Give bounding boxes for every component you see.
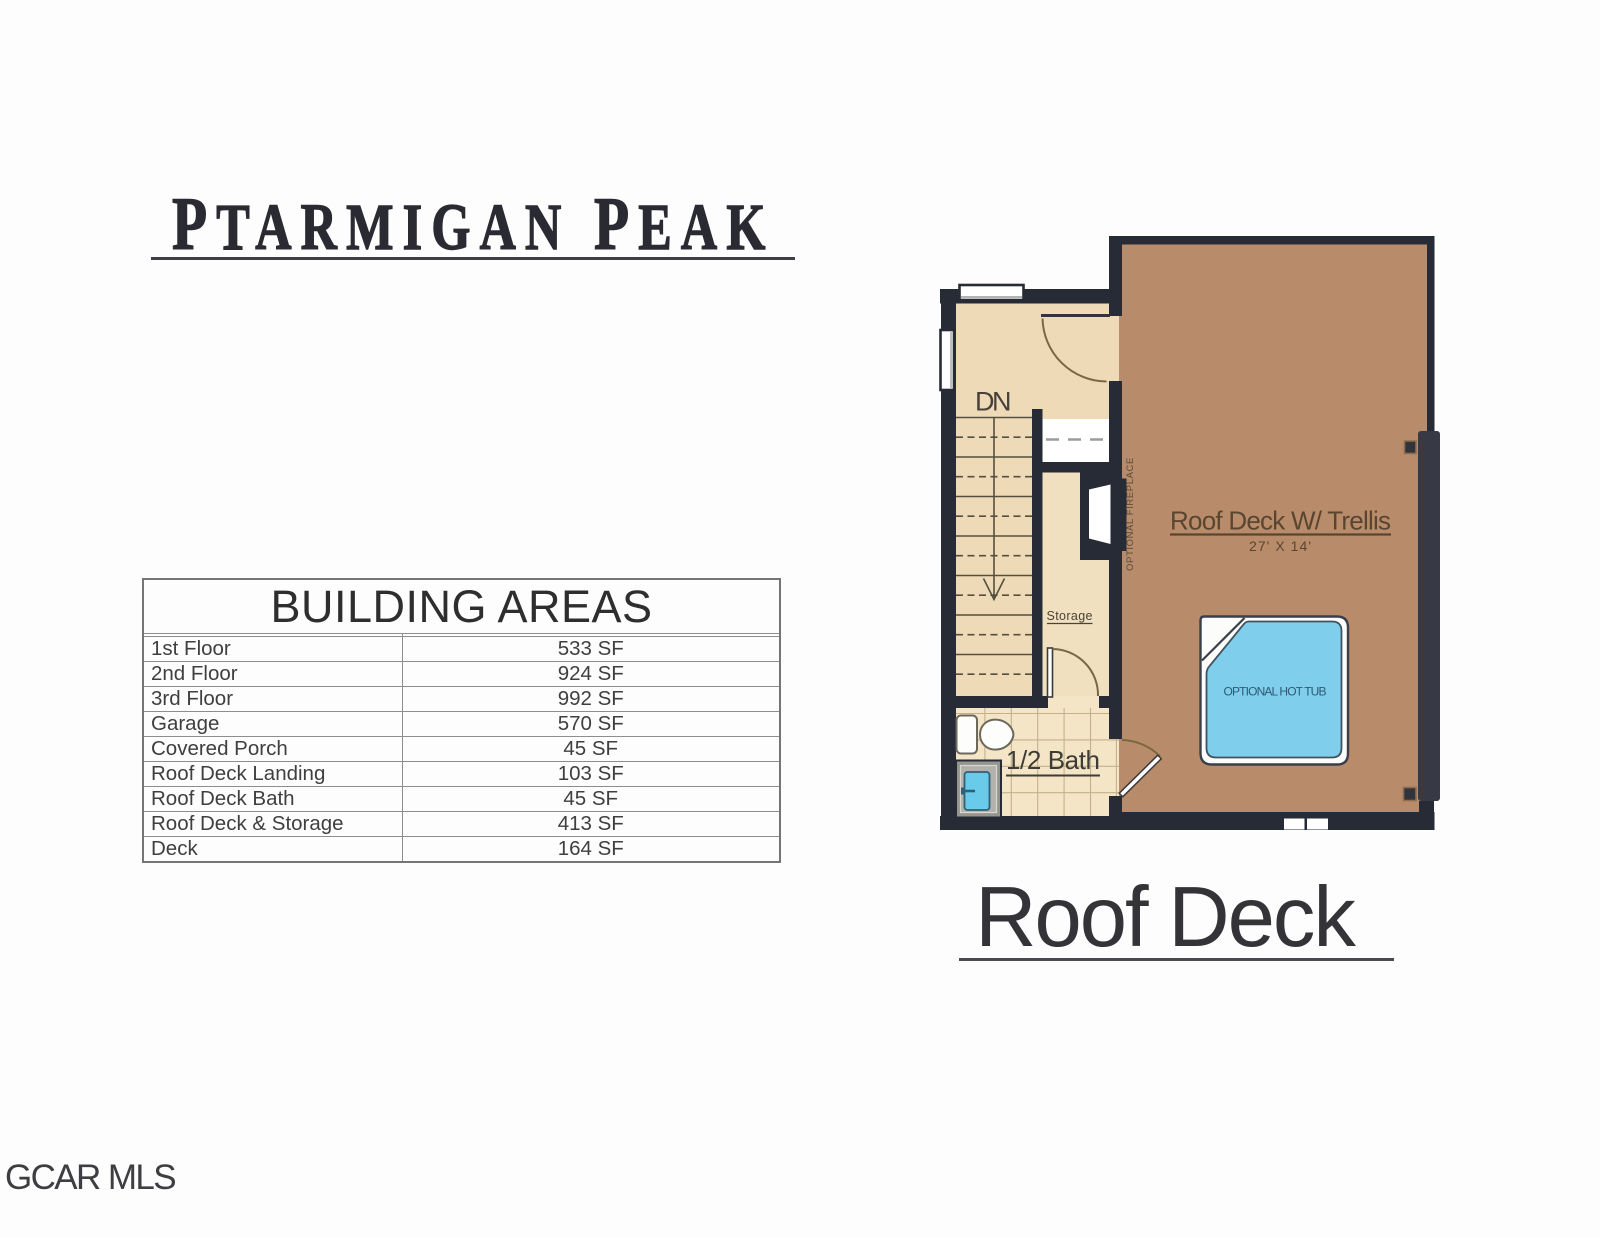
svg-text:1/2 Bath: 1/2 Bath <box>1006 745 1100 775</box>
svg-text:Storage: Storage <box>1047 609 1093 623</box>
svg-text:Roof Deck W/ Trellis: Roof Deck W/ Trellis <box>1170 506 1391 536</box>
svg-text:DN: DN <box>975 387 1012 417</box>
svg-text:OPTIONAL FIREPLACE: OPTIONAL FIREPLACE <box>1125 457 1136 571</box>
svg-text:OPTIONAL HOT TUB: OPTIONAL HOT TUB <box>1224 685 1327 699</box>
svg-text:27' X 14': 27' X 14' <box>1249 538 1311 554</box>
